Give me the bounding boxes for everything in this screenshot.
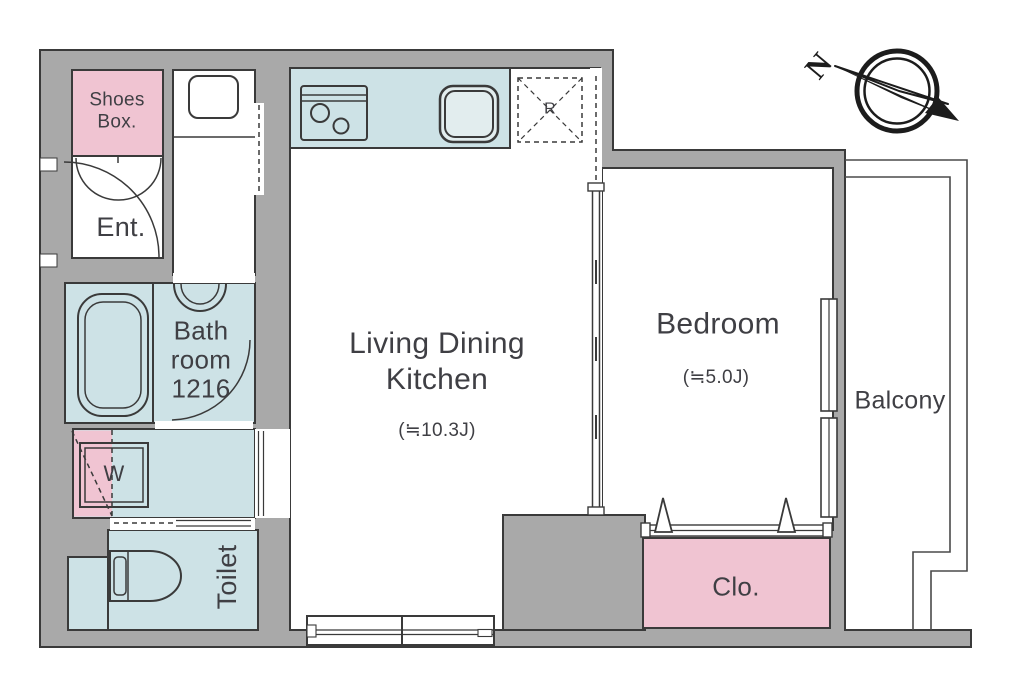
label-entrance: Ent. bbox=[96, 212, 145, 244]
room-corridor bbox=[173, 70, 255, 275]
label-balcony: Balcony bbox=[854, 386, 945, 416]
washroom-door-gap bbox=[255, 429, 290, 518]
toilet-door-gap bbox=[110, 518, 255, 530]
partition-cap-top bbox=[588, 183, 604, 191]
wall-block bbox=[503, 515, 645, 630]
front-door-jamb-top bbox=[40, 158, 57, 171]
corridor-bath-gap bbox=[173, 273, 255, 283]
label-bedroom: Bedroom bbox=[656, 306, 780, 341]
closet-cap-right bbox=[823, 523, 832, 537]
room-bedroom bbox=[602, 168, 833, 530]
closet-cap-left bbox=[641, 523, 650, 537]
bath-door-gap bbox=[155, 421, 253, 429]
label-ldk: Living Dining Kitchen bbox=[349, 326, 525, 398]
label-ldk-size: (≒10.3J) bbox=[398, 420, 475, 442]
label-bedroom-size: (≒5.0J) bbox=[683, 367, 750, 389]
front-door-jamb-bottom bbox=[40, 254, 57, 267]
partition-cap-bottom bbox=[588, 507, 604, 515]
label-toilet: Toilet bbox=[212, 545, 244, 610]
compass-icon bbox=[835, 51, 959, 131]
label-bathroom: Bath room 1216 bbox=[171, 316, 231, 403]
label-shoes-box: Shoes Box. bbox=[89, 90, 144, 135]
label-refrigerator: R bbox=[544, 101, 556, 120]
label-closet: Clo. bbox=[712, 572, 759, 603]
floorplan-canvas: Shoes Box. Ent. Bath room 1216 W Toilet … bbox=[0, 0, 1024, 696]
ldk-window-tab-left bbox=[307, 625, 316, 637]
ldk-window-tab-right bbox=[478, 630, 492, 637]
toilet-tank-nook bbox=[68, 557, 108, 630]
label-washer: W bbox=[103, 461, 124, 487]
